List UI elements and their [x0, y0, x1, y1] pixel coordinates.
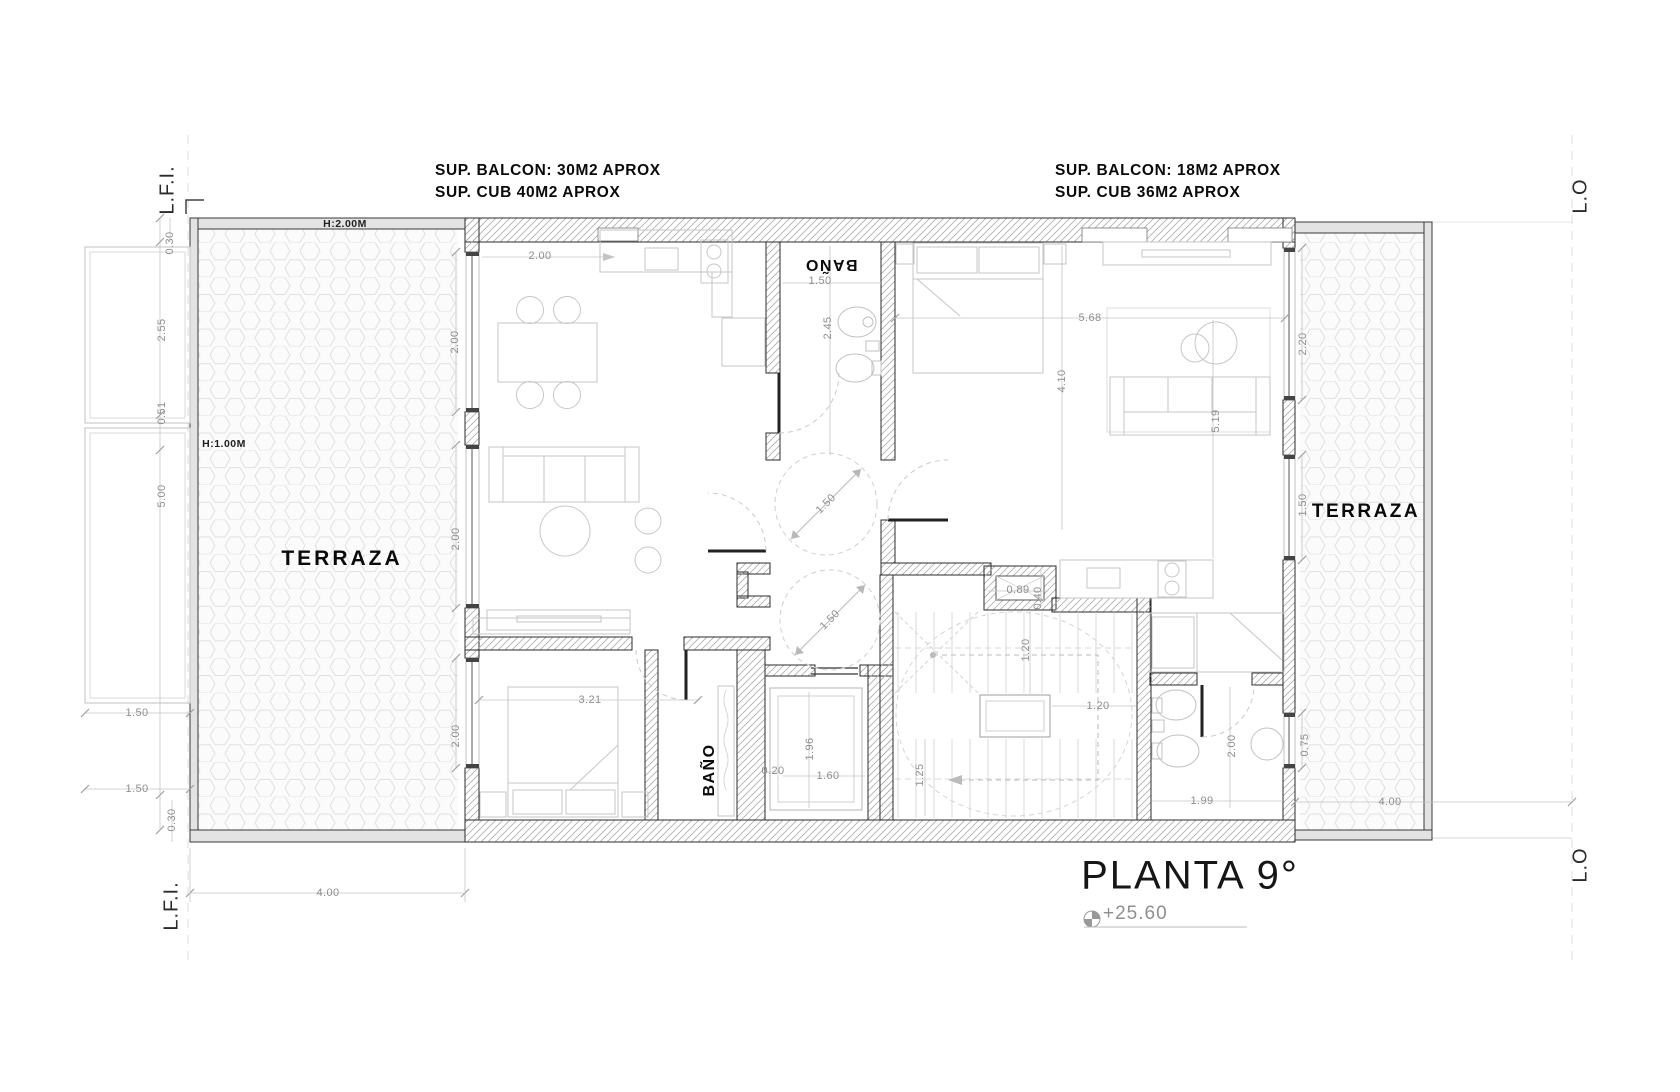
room-label: TERRAZA	[281, 547, 402, 571]
dimension-label: 1.96	[804, 737, 816, 760]
dimension-label: 1.20	[1020, 638, 1032, 661]
dimension-label: 3.21	[578, 694, 601, 706]
dimension-label: 1.50	[125, 707, 148, 719]
dimension-label: 0.30	[164, 231, 176, 254]
furniture-left-apartment	[473, 230, 765, 817]
boundary-label-lo-bottom: L.O	[1570, 847, 1593, 882]
dimension-label: 2.00	[449, 330, 461, 353]
area-note-right-line2: SUP. CUB 36M2 APROX	[1055, 182, 1281, 204]
dimension-label: 2.00	[528, 250, 551, 262]
area-note-right: SUP. BALCON: 18M2 APROX SUP. CUB 36M2 AP…	[1055, 160, 1281, 204]
dimension-label: 4.00	[316, 887, 339, 899]
dimension-label: 0.75	[1299, 733, 1311, 756]
dimension-label: 5.19	[1210, 409, 1222, 432]
dimension-label: 0.89	[1006, 584, 1029, 596]
room-label: H:1.00M	[202, 438, 246, 450]
dimension-label: 2.00	[450, 527, 462, 550]
right-terrace	[1295, 222, 1432, 840]
dimension-label: 1.20	[1086, 700, 1109, 712]
area-note-left-line2: SUP. CUB 40M2 APROX	[435, 182, 661, 204]
room-label: TERRAZA	[1312, 501, 1420, 523]
left-terrace	[190, 218, 465, 842]
boundary-label-lfi-bottom: L.F.I.	[161, 881, 184, 930]
room-label: BAÑO	[804, 255, 857, 273]
dimension-label: 2.20	[1297, 332, 1309, 355]
dimension-label: 2.45	[822, 316, 834, 339]
dimension-label: 1.25	[914, 763, 926, 786]
dimension-label: 0.20	[761, 765, 784, 777]
bathroom-top-fixtures	[836, 307, 881, 382]
room-label: BAÑO	[701, 743, 719, 796]
dimension-label: 1.60	[816, 770, 839, 782]
dimension-label: 1.99	[1190, 795, 1213, 807]
dimension-label: 0.40	[1032, 586, 1044, 609]
dimension-label: 1.50	[125, 783, 148, 795]
bathroom-right-fixtures	[1152, 690, 1283, 767]
area-note-left-line1: SUP. BALCON: 30M2 APROX	[435, 160, 661, 182]
dimension-label: 0.51	[156, 401, 168, 424]
dimension-label: 1.50	[808, 275, 831, 287]
dimension-label: 2.55	[156, 318, 168, 341]
stairs	[895, 612, 1135, 818]
left-planters	[85, 247, 190, 703]
room-label: H:2.00M	[323, 218, 367, 230]
area-note-right-line1: SUP. BALCON: 18M2 APROX	[1055, 160, 1281, 182]
boundary-label-lo-top: L.O	[1570, 178, 1593, 213]
boundary-label-lfi-top: L.F.I.	[157, 165, 180, 214]
page-title: PLANTA 9°	[1081, 854, 1299, 899]
dimension-label: 5.68	[1078, 312, 1101, 324]
dimension-label: 5.00	[156, 484, 168, 507]
floor-plan-page: TERRAZATERRAZABAÑOBAÑOH:2.00MH:1.00M0.30…	[0, 0, 1680, 1092]
dimension-label: 4.10	[1056, 369, 1068, 392]
dimension-label: 4.00	[1378, 796, 1401, 808]
dimension-label: 2.00	[450, 724, 462, 747]
level-value: +25.60	[1103, 903, 1168, 925]
dimension-label: 1.50	[1297, 493, 1309, 516]
elevator	[770, 688, 862, 810]
floor-plan-drawing	[0, 0, 1680, 1092]
dimension-label: 0.30	[166, 808, 178, 831]
dimension-label: 2.00	[1226, 734, 1238, 757]
area-note-left: SUP. BALCON: 30M2 APROX SUP. CUB 40M2 AP…	[435, 160, 661, 204]
turning-circles	[775, 453, 880, 670]
